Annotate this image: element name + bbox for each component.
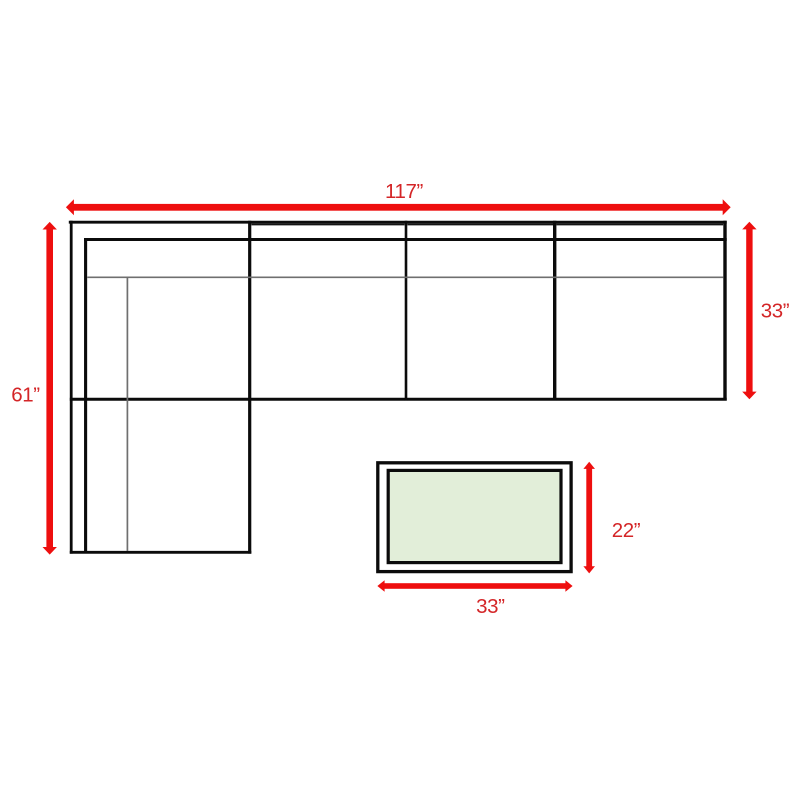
svg-text:33”: 33” xyxy=(476,595,505,618)
svg-text:22”: 22” xyxy=(612,519,641,542)
svg-text:117”: 117” xyxy=(385,180,423,203)
svg-text:33”: 33” xyxy=(761,300,790,323)
svg-text:61”: 61” xyxy=(11,383,40,406)
